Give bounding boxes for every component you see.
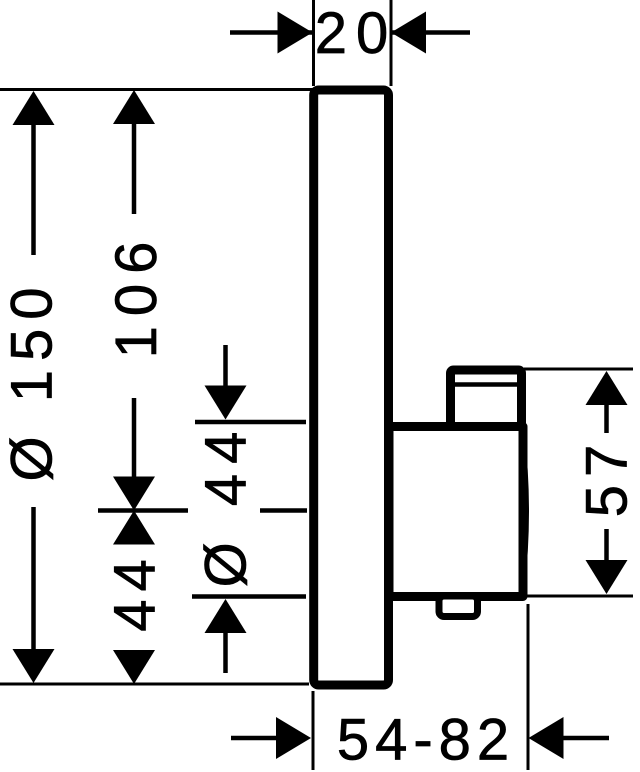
svg-text:57: 57	[575, 437, 640, 518]
svg-text:106: 106	[104, 232, 169, 359]
svg-text:54-82: 54-82	[337, 708, 515, 772]
svg-text:Ø 150: Ø 150	[0, 279, 65, 482]
svg-text:Ø 44: Ø 44	[194, 422, 259, 588]
svg-text:44: 44	[103, 551, 168, 632]
svg-text:20: 20	[315, 1, 398, 66]
